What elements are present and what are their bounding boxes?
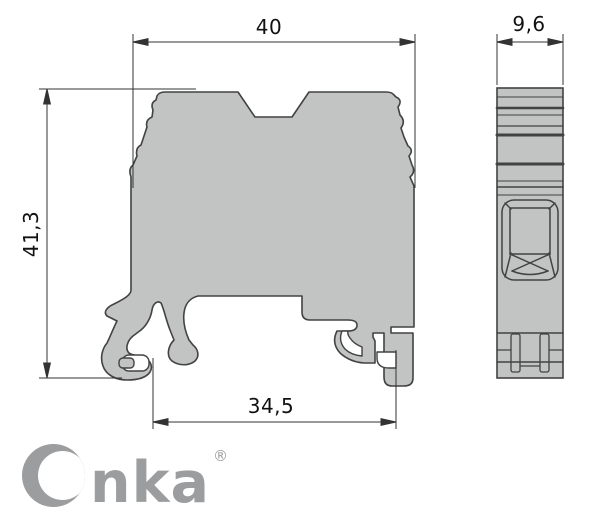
- registered-trademark-mark: ®: [213, 449, 228, 464]
- left-hook-tongue: [119, 358, 134, 368]
- front-view: [102, 92, 414, 386]
- side-view: [497, 88, 563, 378]
- right-foot-notch: [377, 352, 396, 368]
- technical-drawing-canvas: 40 9,6 41,3 34,5 nka ®: [0, 0, 600, 521]
- side-view-body: [497, 88, 563, 378]
- dimension-label-side-width: 9,6: [504, 14, 554, 34]
- onka-logo: nka ®: [22, 441, 228, 507]
- front-view-body-outline: [102, 92, 414, 386]
- onka-logo-crescent-icon: [38, 451, 85, 500]
- dimension-label-bottom-width: 34,5: [244, 396, 298, 416]
- dimension-label-height: 41,3: [21, 204, 41, 264]
- onka-logo-o-icon: [22, 444, 85, 507]
- dimension-label-top-width: 40: [249, 17, 289, 37]
- dimension-side-width: [497, 34, 563, 85]
- onka-logo-text: nka: [90, 459, 210, 507]
